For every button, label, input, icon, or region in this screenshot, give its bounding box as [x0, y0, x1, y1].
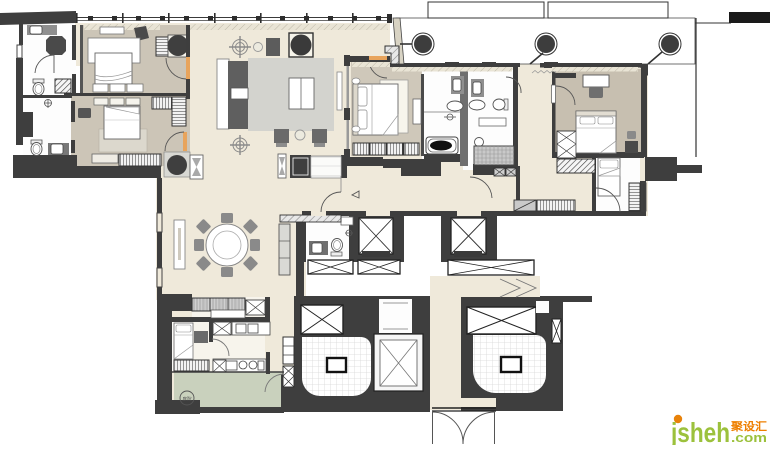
svg-text:聚设汇: 聚设汇	[730, 419, 767, 433]
svg-text:庭院: 庭院	[183, 396, 192, 403]
